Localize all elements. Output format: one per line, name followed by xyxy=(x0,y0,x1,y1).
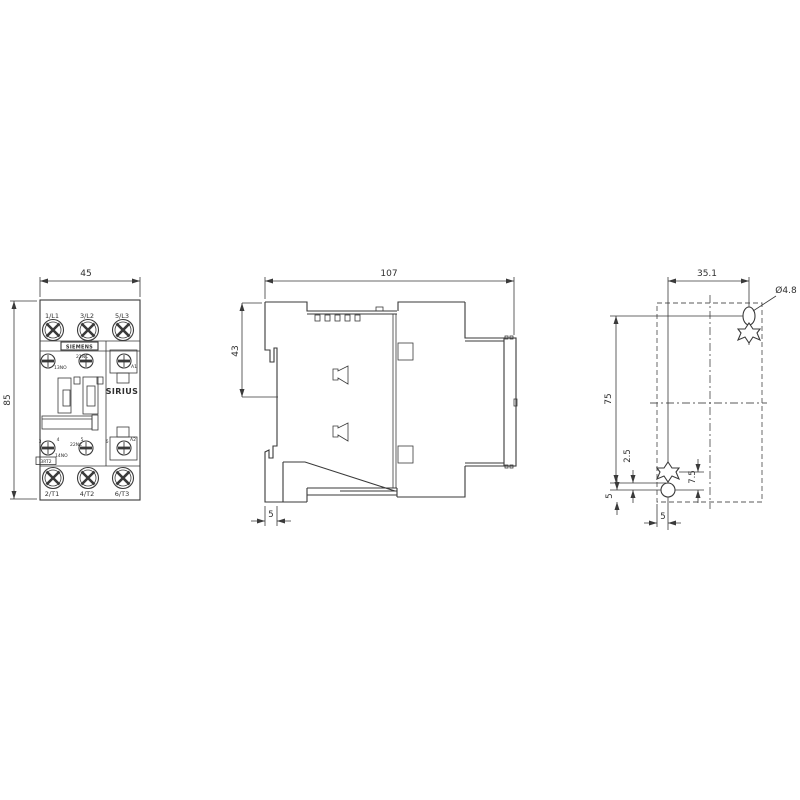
keyhole-bottom xyxy=(657,462,679,497)
dim-side-height: 43 xyxy=(231,303,278,397)
dimension-drawing: 45 85 1/ xyxy=(0,0,800,800)
dim-mount-vertical: 75 xyxy=(604,316,619,483)
brand-label: SIEMENS xyxy=(66,344,93,350)
dim-mount-75b: 7.5 xyxy=(688,459,701,503)
release-lever-icon-bottom xyxy=(333,423,348,441)
reference-lines xyxy=(610,316,744,527)
series-label: SIRIUS xyxy=(106,387,139,396)
position-number-4: 4 xyxy=(57,437,60,443)
aux-label-a1: A1 xyxy=(131,364,137,370)
dim-mount-5h: 5 xyxy=(644,512,681,526)
model-label: 3RT2 xyxy=(40,459,51,465)
terminal-label-4t2: 4/T2 xyxy=(80,490,94,498)
hole-axes xyxy=(668,277,749,530)
screw-terminal-icons-bottom xyxy=(43,468,134,489)
terminal-label-6t3: 6/T3 xyxy=(115,490,129,498)
dim-mount-5v-label: 5 xyxy=(605,493,615,498)
dim-mount-25-label: 2.5 xyxy=(623,449,633,463)
screw-terminal-icons-top xyxy=(43,320,134,341)
mounting-view: 35.1 Ø4.8 75 2.5 7.5 xyxy=(604,269,797,530)
terminal-label-3l2: 3/L2 xyxy=(80,312,94,320)
aux-label-14no: 14NO xyxy=(55,453,68,459)
side-view: 107 43 5 xyxy=(231,269,517,526)
position-number-6: 6 xyxy=(106,439,109,445)
dim-front-height-label: 85 xyxy=(3,394,13,405)
dim-side-foot-label: 5 xyxy=(268,510,273,520)
dim-mount-5h-label: 5 xyxy=(660,512,665,522)
dim-side-height-label: 43 xyxy=(231,345,241,356)
terminal-label-1l1: 1/L1 xyxy=(45,312,59,320)
terminal-label-5l3: 5/L3 xyxy=(115,312,129,320)
dim-front-width-label: 45 xyxy=(80,269,91,279)
hole-diameter-callout: Ø4.8 xyxy=(753,285,797,311)
front-view: 45 85 1/ xyxy=(3,269,140,500)
release-lever-icon-top xyxy=(333,366,348,384)
aux-label-13no: 13NO xyxy=(54,365,67,371)
dim-mount-vertical-label: 75 xyxy=(604,393,614,404)
aux-label-22nc: 22NC xyxy=(70,442,82,448)
position-number-3: 3 xyxy=(39,439,42,445)
dim-mount-horizontal: 35.1 xyxy=(668,269,749,284)
dim-mount-75b-label: 7.5 xyxy=(688,470,698,484)
aux-label-a2: A2 xyxy=(130,437,136,443)
aux-label-21nc: 21NC xyxy=(76,354,88,360)
aux-screw-icons-bottom xyxy=(41,441,131,455)
hole-diameter-label: Ø4.8 xyxy=(775,285,797,296)
dim-side-foot: 5 xyxy=(251,506,291,526)
dim-front-height: 85 xyxy=(3,301,37,499)
dim-mount-25: 2.5 xyxy=(623,449,636,503)
keyhole-top xyxy=(738,307,760,343)
dim-front-width: 45 xyxy=(40,269,140,297)
side-body-outline xyxy=(265,302,517,502)
dim-mount-horizontal-label: 35.1 xyxy=(697,269,717,279)
dim-side-width-label: 107 xyxy=(380,269,397,279)
terminal-label-2t1: 2/T1 xyxy=(45,490,59,498)
